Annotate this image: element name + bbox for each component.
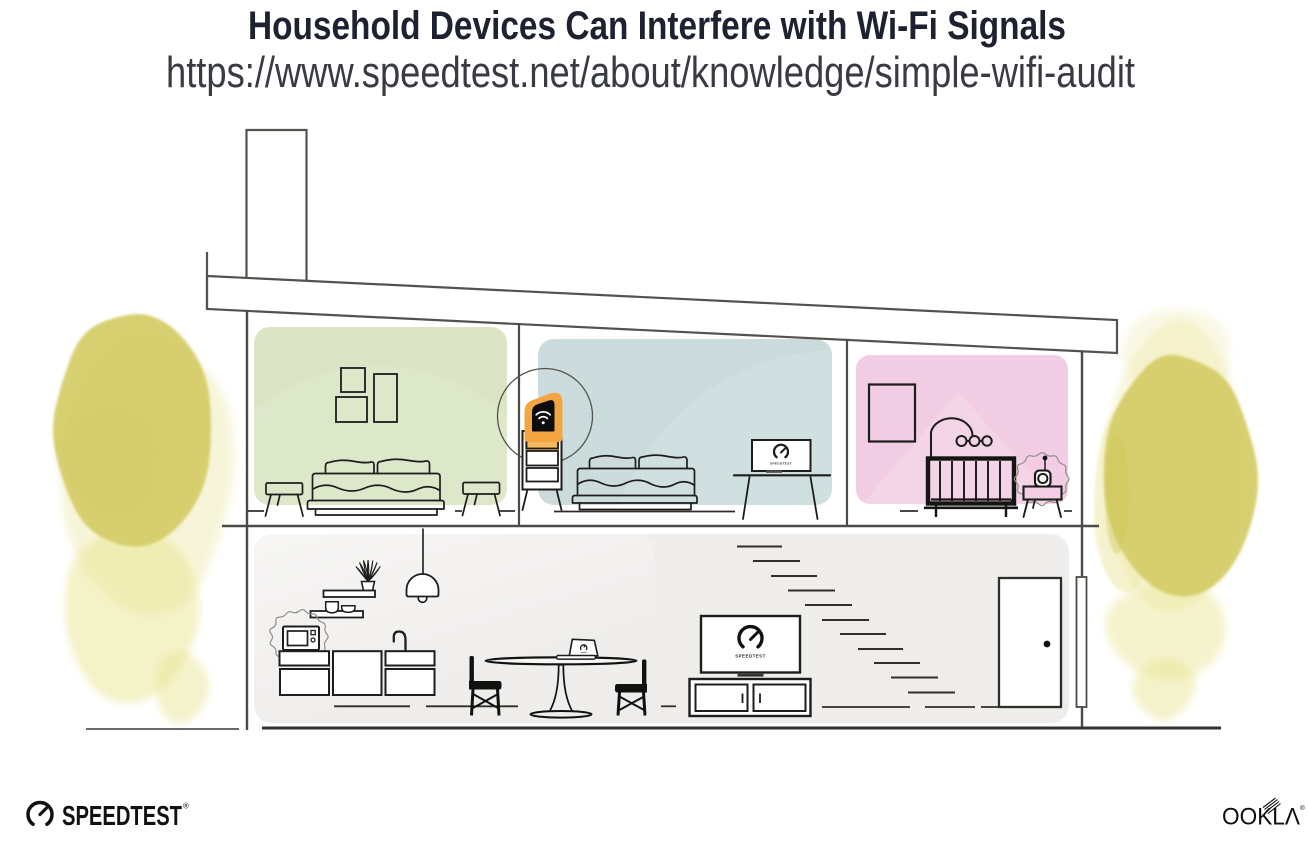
svg-text:https://www.speedtest.net/abou: https://www.speedtest.net/about/knowledg… [166, 48, 1135, 97]
svg-text:®: ® [1300, 804, 1305, 812]
svg-text:OOKLΛ: OOKLΛ [1222, 804, 1300, 831]
svg-text:®: ® [183, 802, 189, 811]
svg-text:SPEEDTEST: SPEEDTEST [62, 800, 182, 831]
svg-text:Household Devices Can Interfer: Household Devices Can Interfere with Wi-… [248, 4, 1066, 48]
svg-text:SPEEDTEST: SPEEDTEST [770, 462, 792, 466]
svg-text:SPEEDTEST: SPEEDTEST [735, 654, 766, 659]
